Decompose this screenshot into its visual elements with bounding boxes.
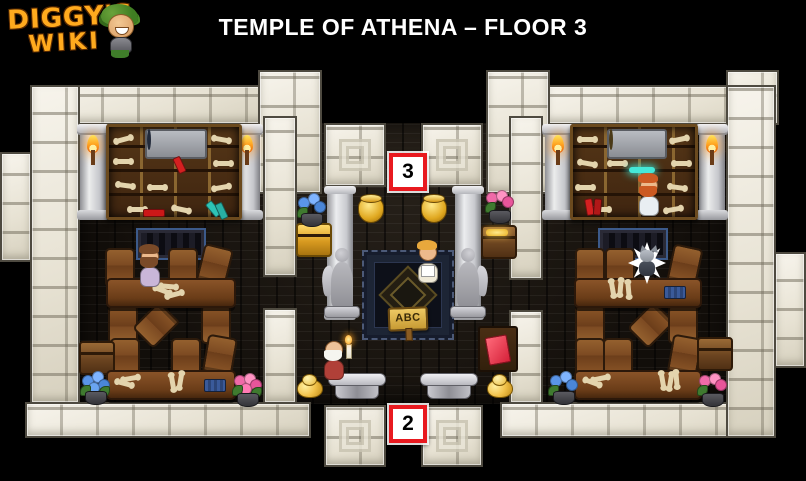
statue-head <box>461 248 475 262</box>
red-book-icon <box>593 198 602 216</box>
letter-desk <box>478 326 518 372</box>
wolf-head <box>640 250 654 262</box>
npc-beard <box>639 186 657 197</box>
bone-icon <box>213 136 231 144</box>
wooden-chest <box>697 337 733 371</box>
bone-icon <box>577 185 594 190</box>
red-letter-icon <box>485 334 512 365</box>
candle-icon <box>346 344 352 359</box>
leaf-icon <box>232 385 243 396</box>
torch-flame-icon <box>552 135 564 153</box>
temple-map: ABC <box>0 60 806 481</box>
bone-icon <box>671 135 689 143</box>
bone-icon <box>673 161 690 166</box>
statue-body <box>331 262 353 308</box>
leaf-icon <box>80 385 91 396</box>
statue-base <box>324 306 360 318</box>
wall-right-wing <box>774 252 806 368</box>
bone-icon <box>669 184 687 191</box>
leaf-icon <box>485 202 496 213</box>
flower-icon <box>566 379 578 391</box>
wall-greek-block <box>324 405 386 467</box>
gold-cauldron-icon <box>421 197 447 223</box>
bone-icon <box>117 182 135 189</box>
bone-icon <box>213 184 231 192</box>
blue-orb-icon <box>147 129 151 150</box>
void-gap <box>322 60 486 123</box>
paper-icon <box>421 265 435 277</box>
flower-pot-pink <box>484 190 514 224</box>
abc-sign-text: ABC <box>395 312 421 325</box>
flower-icon <box>715 379 727 391</box>
leaf-icon <box>697 385 708 396</box>
philosopher-npc <box>136 242 162 288</box>
bone-icon <box>579 137 596 142</box>
marble-bench <box>420 373 478 399</box>
bone-icon <box>665 206 683 214</box>
study-table <box>106 278 236 308</box>
blue-book-icon <box>664 286 686 299</box>
statue-head <box>335 248 349 262</box>
greek-key-icon <box>436 420 468 452</box>
bone-icon <box>173 205 191 213</box>
relic-plaque <box>607 129 667 159</box>
wall-left <box>30 85 80 404</box>
wall-greek-block <box>421 405 483 467</box>
flower-pot-blue <box>80 371 110 405</box>
wolf-spirit <box>628 242 666 284</box>
study-table <box>574 370 702 400</box>
leaf-icon <box>548 385 559 396</box>
gold-pile-icon <box>484 376 514 398</box>
wall-greek-block <box>324 123 386 187</box>
wall-greek-block <box>421 123 483 187</box>
npc-hair <box>638 173 658 183</box>
angel-statue <box>322 240 360 318</box>
gold-cauldron-icon <box>358 197 384 223</box>
relic-plaque <box>145 129 207 159</box>
flower-icon <box>502 196 514 208</box>
page-title: TEMPLE OF ATHENA – FLOOR 3 <box>219 14 588 41</box>
diggy-mascot-icon <box>98 4 142 58</box>
bone-icon <box>673 371 679 388</box>
npc-body <box>140 267 160 287</box>
flower-pot-pink <box>232 373 262 407</box>
bone-icon <box>115 135 133 144</box>
leaf-icon <box>251 387 262 398</box>
scholar-npc <box>635 171 661 217</box>
bookshelf-right <box>570 124 698 220</box>
torch-flame-icon <box>241 135 253 153</box>
bookshelf-left <box>106 124 242 220</box>
bone-icon <box>579 160 597 168</box>
flower-pot-blue <box>296 193 326 227</box>
npc-body <box>639 196 659 216</box>
bone-icon <box>160 283 177 289</box>
wall-right <box>726 85 776 438</box>
flower-icon <box>314 201 326 213</box>
student-npc <box>414 238 440 284</box>
statue-base <box>450 306 486 318</box>
abc-sign: ABC <box>388 306 429 331</box>
bone-icon <box>617 279 623 296</box>
mascot-legs <box>111 50 129 58</box>
bone-icon <box>115 159 132 164</box>
torch-flame-icon <box>706 135 718 153</box>
npc-hair <box>417 240 437 250</box>
wall-divider-left-lower <box>263 308 297 404</box>
candle-flame-icon <box>345 335 352 344</box>
bone-icon <box>609 161 626 166</box>
torch-column <box>699 126 725 218</box>
marker-floor-3[interactable]: 3 <box>389 153 427 191</box>
npc-hair <box>139 244 159 254</box>
angel-statue <box>450 240 488 318</box>
npc-beard <box>140 257 158 268</box>
flower-pot-pink <box>697 373 727 407</box>
greek-key-icon <box>436 139 468 171</box>
statue-body <box>457 262 479 308</box>
wall-bottom-left <box>25 402 311 438</box>
wolf-body <box>639 261 655 276</box>
leaf-icon <box>297 207 308 218</box>
bone-icon <box>609 280 617 298</box>
page-header: DIGGY'S WIKI TEMPLE OF ATHENA – FLOOR 3 <box>0 0 806 60</box>
greek-key-icon <box>339 420 371 452</box>
bone-icon <box>149 185 166 190</box>
study-table <box>106 370 236 400</box>
red-book-icon <box>143 209 165 217</box>
greek-key-icon <box>339 139 371 171</box>
torch-column <box>80 126 106 218</box>
torch-flame-icon <box>87 135 99 153</box>
wall-divider-left-upper <box>263 116 297 277</box>
elder-npc <box>320 335 346 381</box>
torch-column <box>545 126 571 218</box>
bone-icon <box>215 161 232 166</box>
globe-icon <box>609 129 613 150</box>
leaf-icon <box>99 386 110 397</box>
bone-icon <box>177 372 185 390</box>
blue-book-icon <box>204 379 226 392</box>
marker-floor-2[interactable]: 2 <box>389 405 427 443</box>
npc-body <box>324 360 344 380</box>
wall-left-wing <box>0 152 32 262</box>
npc-beard <box>324 350 342 361</box>
flower-pot-blue <box>548 371 578 405</box>
